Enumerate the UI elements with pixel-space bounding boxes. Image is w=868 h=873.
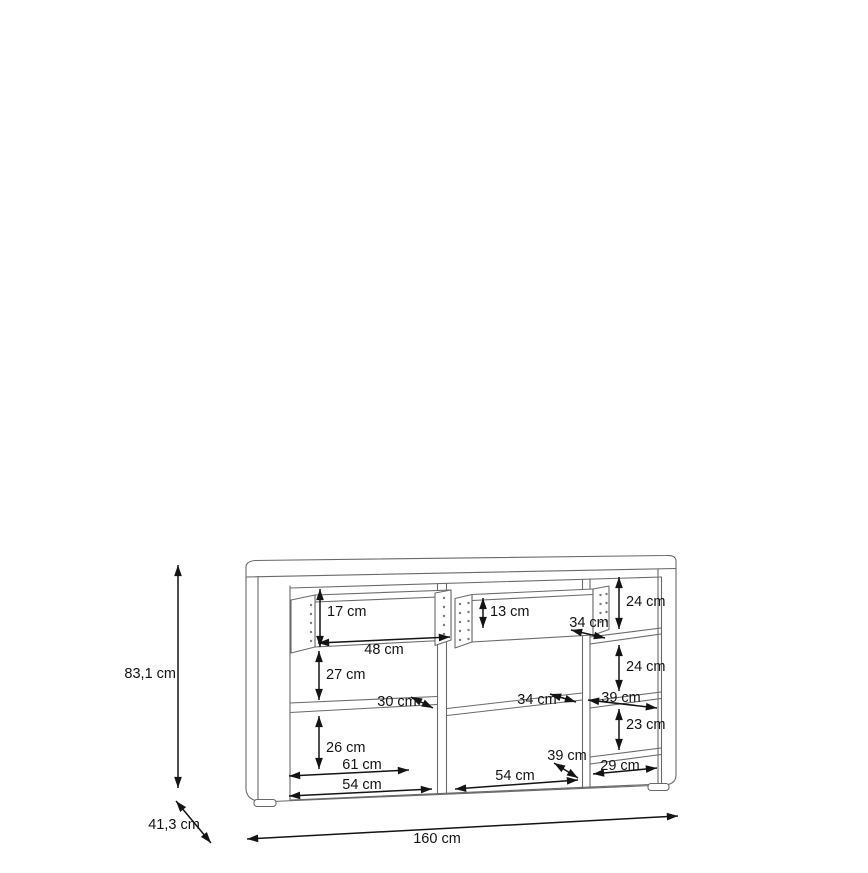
- dim-label-width: 160 cm: [413, 831, 461, 847]
- dim-label-drawer-right-height: 13 cm: [490, 604, 530, 620]
- dim-label-drawer-right-width: 34 cm: [569, 615, 609, 631]
- dim-label-left-opening-width: 54 cm: [342, 777, 382, 793]
- dim-label-right-lower-height: 23 cm: [626, 717, 666, 733]
- dim-label-mid-opening-width: 54 cm: [495, 768, 535, 784]
- dim-label-mid-bottom-depth: 39 cm: [547, 748, 587, 764]
- dim-label-depth: 41,3 cm: [148, 817, 200, 833]
- dim-label-right-mid-height: 24 cm: [626, 659, 666, 675]
- dim-label-left-shelf-depth: 30 cm: [377, 694, 417, 710]
- dim-label-right-shelf-depth: 39 cm: [601, 690, 641, 706]
- dim-label-height: 83,1 cm: [124, 666, 176, 682]
- dim-label-right-opening-width: 29 cm: [600, 758, 640, 774]
- right-foot: [648, 784, 669, 791]
- dim-label-mid-shelf-depth: 34 cm: [517, 692, 557, 708]
- dim-label-right-top-height: 24 cm: [626, 594, 666, 610]
- furniture-dimension-diagram: 83,1 cm 41,3 cm 160 cm 17 cm 48 cm 13 cm…: [0, 0, 868, 868]
- dim-label-left-lower-height: 26 cm: [326, 740, 366, 756]
- dim-label-left-upper-height: 27 cm: [326, 667, 366, 683]
- dim-label-drawer-left-width: 48 cm: [364, 642, 404, 658]
- left-foot: [254, 800, 276, 807]
- dim-label-drawer-left-height: 17 cm: [327, 604, 367, 620]
- dim-label-left-shelf-width: 61 cm: [342, 757, 382, 773]
- dim-arrow-width: [247, 816, 678, 839]
